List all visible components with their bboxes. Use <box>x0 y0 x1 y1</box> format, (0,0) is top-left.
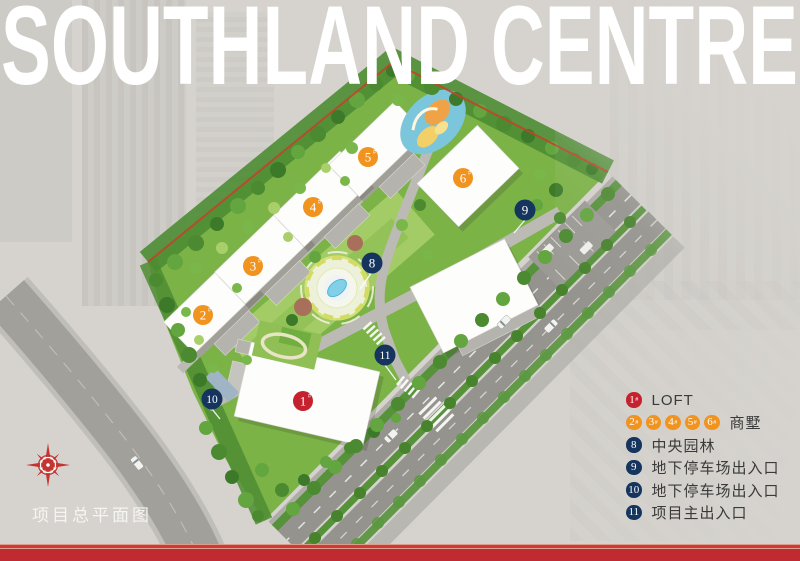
svg-text:9: 9 <box>522 203 529 218</box>
marker-building-4: 4 # <box>303 197 323 217</box>
marker-parking-entrance-10: 10 <box>202 389 223 410</box>
marker-main-entrance-11: 11 <box>375 345 396 366</box>
page-title: SOUTHLAND CENTRE <box>1 0 798 108</box>
svg-text:10: 10 <box>206 394 218 406</box>
svg-text:8: 8 <box>369 256 376 271</box>
marker-building-5: 5 # <box>358 147 378 167</box>
legend-item-parking-9: 9 地下停车场出入口 <box>626 458 780 478</box>
svg-text:4: 4 <box>310 200 317 215</box>
svg-text:1: 1 <box>300 394 307 409</box>
plan-caption: 项目总平面图 <box>32 501 152 526</box>
svg-text:2: 2 <box>200 308 207 323</box>
marker-building-2: 2 # <box>193 305 213 325</box>
legend: 1# LOFT 2# 3# 4# 5# 6# 商墅 8 中央园林 9 地下停车场… <box>626 390 780 525</box>
svg-text:6: 6 <box>460 171 467 186</box>
legend-marker-6: 6# <box>704 415 720 431</box>
legend-label: LOFT <box>652 392 694 409</box>
marker-building-3: 3 # <box>243 256 263 276</box>
legend-item-parking-10: 10 地下停车场出入口 <box>626 480 780 500</box>
svg-text:3: 3 <box>250 259 257 274</box>
marker-central-garden: 8 <box>362 253 383 274</box>
legend-marker-1: 1# <box>626 392 642 408</box>
legend-label: 中央园林 <box>652 435 716 456</box>
legend-marker-11: 11 <box>626 505 642 521</box>
legend-item-central-garden: 8 中央园林 <box>626 435 780 455</box>
footer-red-band <box>0 544 800 561</box>
compass-icon <box>24 441 72 489</box>
legend-label: 地下停车场出入口 <box>652 480 780 501</box>
legend-item-loft: 1# LOFT <box>626 390 780 410</box>
legend-marker-5: 5# <box>685 415 701 431</box>
legend-marker-9: 9 <box>626 460 642 476</box>
legend-marker-10: 10 <box>626 482 642 498</box>
legend-marker-2: 2# <box>626 415 642 431</box>
svg-text:5: 5 <box>365 150 372 165</box>
legend-item-townhouses: 2# 3# 4# 5# 6# 商墅 <box>626 413 780 433</box>
legend-label: 地下停车场出入口 <box>652 457 780 478</box>
svg-text:11: 11 <box>379 350 390 362</box>
legend-marker-8: 8 <box>626 437 642 453</box>
central-fountain <box>307 258 367 318</box>
legend-item-main-entrance: 11 项目主出入口 <box>626 503 780 523</box>
site-plan-poster: 1 # 2 # 3 # 4 # 5 # <box>0 0 800 561</box>
legend-label: 商墅 <box>730 412 762 433</box>
marker-building-1: 1 # <box>293 391 313 411</box>
legend-marker-3: 3# <box>646 415 662 431</box>
legend-marker-4: 4# <box>665 415 681 431</box>
legend-label: 项目主出入口 <box>652 502 748 523</box>
marker-building-6: 6 # <box>453 168 473 188</box>
marker-parking-entrance-9: 9 <box>515 200 536 221</box>
